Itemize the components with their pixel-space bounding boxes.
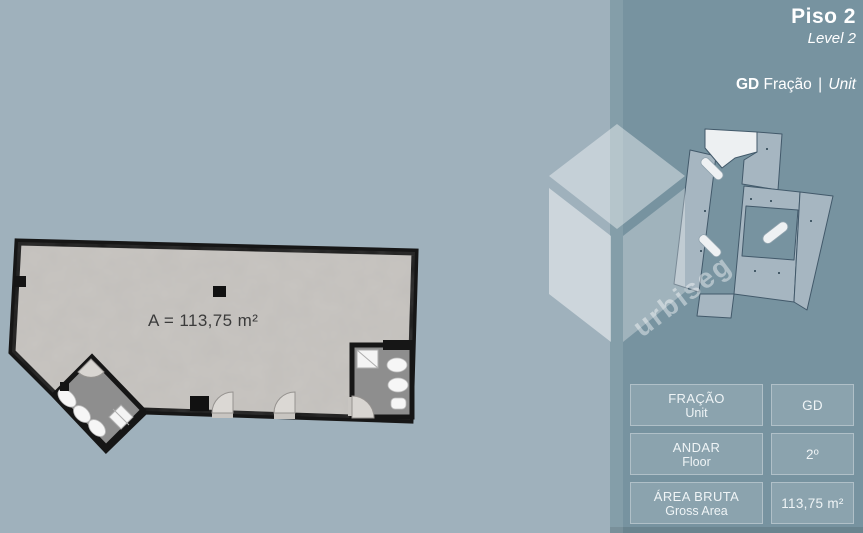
toilet-icon [388, 378, 408, 392]
area-label: A = 113,75 m² [148, 311, 258, 331]
table-row: ÁREA BRUTA Gross Area 113,75 m² [630, 482, 854, 524]
wall-stub [14, 276, 26, 287]
details-table: FRAÇÃO Unit GD ANDAR Floor 2º ÁREA BRUTA… [630, 384, 854, 531]
row-value: 113,75 m² [771, 482, 854, 524]
page-title: Piso 2 [791, 5, 856, 29]
unit-code: GD [736, 76, 759, 93]
row-label: FRAÇÃO Unit [630, 384, 763, 426]
floor-plan-drawing [0, 0, 610, 533]
toilet-icon [387, 358, 407, 372]
table-row: FRAÇÃO Unit GD [630, 384, 854, 426]
page: A = 113,75 m² Piso 2 Level 2 GD Fração |… [0, 0, 863, 533]
column [213, 286, 226, 297]
sidebar: Piso 2 Level 2 GD Fração | Unit [610, 0, 863, 533]
sidebar-header: Piso 2 Level 2 [791, 5, 856, 48]
floor-plan-area: A = 113,75 m² [0, 0, 610, 533]
unit-header: GD Fração | Unit [736, 76, 856, 94]
sink-icon [391, 398, 406, 409]
column [60, 382, 69, 391]
unit-label-pt: Fração [764, 76, 812, 93]
row-label: ÁREA BRUTA Gross Area [630, 482, 763, 524]
unit-label-separator: | [818, 76, 822, 93]
unit-label-en: Unit [828, 76, 856, 93]
bathroom-right [348, 340, 414, 418]
mini-floor-plan [670, 120, 863, 325]
row-label: ANDAR Floor [630, 433, 763, 475]
row-value: 2º [771, 433, 854, 475]
row-value: GD [771, 384, 854, 426]
column [190, 396, 209, 411]
table-row: ANDAR Floor 2º [630, 433, 854, 475]
page-subtitle: Level 2 [791, 30, 856, 48]
